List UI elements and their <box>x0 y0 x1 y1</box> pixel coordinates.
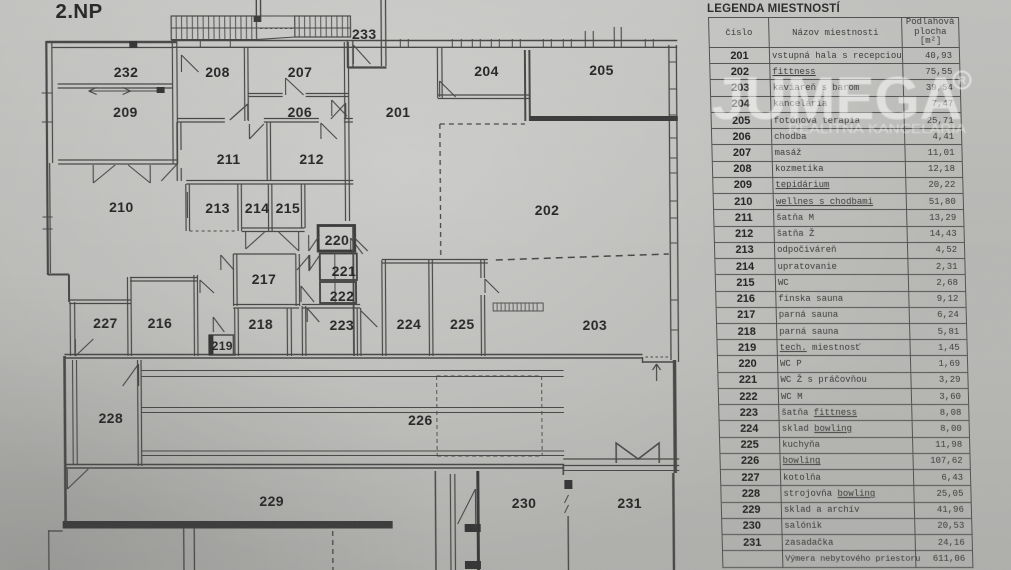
svg-text:211: 211 <box>217 151 241 167</box>
svg-text:231: 231 <box>617 495 642 511</box>
svg-text:206: 206 <box>287 104 312 120</box>
svg-text:201: 201 <box>386 104 411 120</box>
svg-text:216: 216 <box>148 315 173 331</box>
svg-text:204: 204 <box>474 63 499 79</box>
svg-text:226: 226 <box>408 412 433 428</box>
svg-text:233: 233 <box>352 26 377 42</box>
svg-text:229: 229 <box>259 493 284 509</box>
svg-text:223: 223 <box>330 317 355 333</box>
svg-text:210: 210 <box>109 199 134 215</box>
svg-text:217: 217 <box>252 271 277 287</box>
svg-text:218: 218 <box>249 316 274 332</box>
svg-text:225: 225 <box>450 316 475 332</box>
svg-text:212: 212 <box>299 151 324 167</box>
svg-text:208: 208 <box>205 64 230 80</box>
svg-text:227: 227 <box>93 315 118 331</box>
svg-text:224: 224 <box>397 316 422 332</box>
svg-text:2.NP: 2.NP <box>55 0 102 23</box>
svg-text:209: 209 <box>113 104 138 120</box>
svg-text:214: 214 <box>245 200 270 216</box>
svg-text:203: 203 <box>583 317 608 333</box>
svg-text:205: 205 <box>589 62 614 78</box>
svg-text:220: 220 <box>325 232 350 248</box>
svg-text:202: 202 <box>535 202 560 218</box>
svg-text:213: 213 <box>205 200 230 216</box>
svg-text:221: 221 <box>332 263 357 279</box>
svg-text:222: 222 <box>330 288 355 304</box>
svg-text:215: 215 <box>276 200 301 216</box>
svg-text:207: 207 <box>288 64 313 80</box>
svg-text:230: 230 <box>512 495 537 511</box>
svg-text:232: 232 <box>114 64 139 80</box>
svg-text:228: 228 <box>98 410 123 426</box>
svg-text:219: 219 <box>212 339 233 353</box>
